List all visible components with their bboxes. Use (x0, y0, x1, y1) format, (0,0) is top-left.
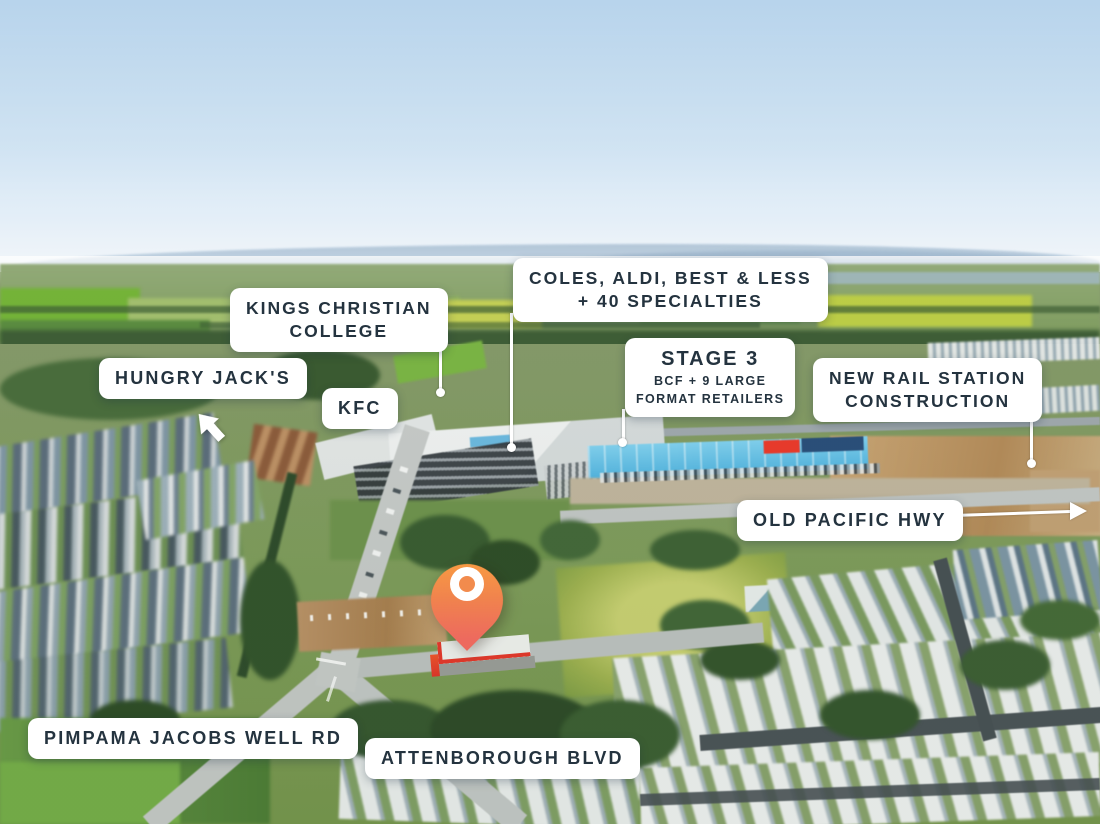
label-new-rail-station: NEW RAIL STATION CONSTRUCTION (813, 358, 1042, 422)
tree-clump (650, 530, 740, 570)
label-text: NEW RAIL STATION (829, 367, 1026, 390)
arrow-right-icon (1070, 502, 1087, 520)
tree-clump (820, 690, 920, 740)
label-title: STAGE 3 (661, 347, 759, 372)
connector-dot-rail-station (1027, 459, 1036, 468)
arrow-tail (207, 424, 225, 443)
tree-clump (240, 560, 300, 680)
label-hungry-jacks: HUNGRY JACK'S (99, 358, 307, 399)
label-attenborough-blvd: ATTENBOROUGH BLVD (365, 738, 640, 779)
label-old-pacific-hwy: OLD PACIFIC HWY (737, 500, 963, 541)
label-kfc: KFC (322, 388, 398, 429)
connector-dot-kings (436, 388, 445, 397)
label-text: COLES, ALDI, BEST & LESS (529, 267, 812, 290)
label-kings-christian-college: KINGS CHRISTIAN COLLEGE (230, 288, 448, 352)
label-text: ATTENBOROUGH BLVD (381, 747, 624, 770)
label-text: PIMPAMA JACOBS WELL RD (44, 727, 342, 750)
label-text: FORMAT RETAILERS (636, 390, 784, 408)
warehouse-navy-section (801, 436, 863, 452)
pin-ring-hole (459, 576, 475, 592)
label-pimpama-jacobs-well-rd: PIMPAMA JACOBS WELL RD (28, 718, 358, 759)
label-text: BCF + 9 LARGE (654, 372, 766, 390)
label-text: OLD PACIFIC HWY (753, 509, 947, 532)
connector-dot-stage3 (618, 438, 627, 447)
label-text: + 40 SPECIALTIES (578, 290, 763, 313)
tree-clump (540, 520, 600, 560)
label-coles-aldi-best-and-less: COLES, ALDI, BEST & LESS + 40 SPECIALTIE… (513, 258, 828, 322)
tree-clump (960, 640, 1050, 690)
label-text: CONSTRUCTION (845, 390, 1010, 413)
dirt-lot (297, 594, 447, 652)
label-stage-3: STAGE 3 BCF + 9 LARGE FORMAT RETAILERS (625, 338, 795, 417)
label-text: COLLEGE (289, 320, 388, 343)
connector-line-coles (510, 313, 513, 446)
label-text: HUNGRY JACK'S (115, 367, 291, 390)
pin-ring (450, 567, 484, 601)
label-text: KINGS CHRISTIAN (246, 297, 432, 320)
warehouse-red-section (763, 439, 799, 453)
label-text: KFC (338, 397, 382, 420)
tree-clump (1020, 600, 1100, 640)
connector-line-stage3 (622, 409, 625, 440)
hungry-jacks-site (247, 424, 318, 486)
connector-line-kings (439, 345, 442, 391)
sky (0, 0, 1100, 272)
aerial-location-map: KINGS CHRISTIAN COLLEGE COLES, ALDI, BES… (0, 0, 1100, 824)
connector-dot-coles (507, 443, 516, 452)
